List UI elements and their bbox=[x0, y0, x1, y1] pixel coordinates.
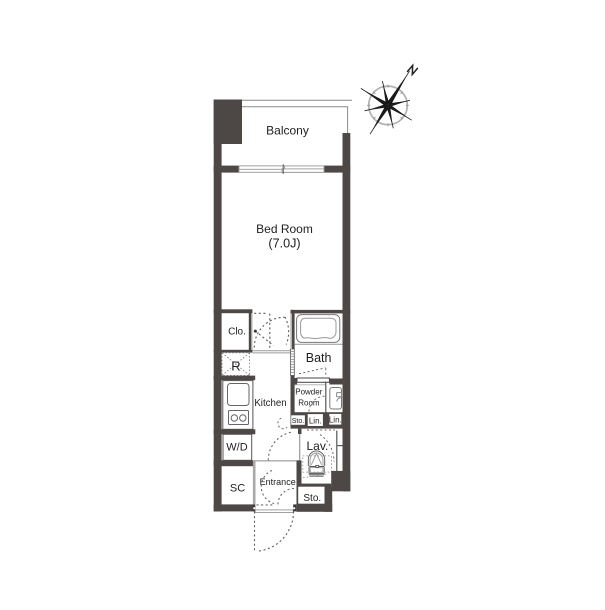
svg-text:SC: SC bbox=[230, 483, 245, 495]
svg-text:Entrance: Entrance bbox=[260, 477, 296, 487]
svg-text:(7.0J): (7.0J) bbox=[268, 237, 300, 251]
svg-text:Kitchen: Kitchen bbox=[254, 398, 286, 409]
svg-text:W/D: W/D bbox=[226, 442, 247, 454]
svg-text:Sto.: Sto. bbox=[292, 418, 305, 425]
svg-text:Bed Room: Bed Room bbox=[256, 222, 313, 236]
svg-text:Room: Room bbox=[298, 399, 320, 408]
svg-text:R: R bbox=[231, 358, 240, 373]
svg-text:Powder: Powder bbox=[295, 387, 322, 396]
svg-text:Lin.: Lin. bbox=[329, 416, 342, 425]
svg-text:Clo.: Clo. bbox=[228, 326, 246, 337]
svg-text:Balcony: Balcony bbox=[266, 124, 309, 138]
svg-text:Lin.: Lin. bbox=[309, 416, 322, 425]
svg-text:Sto.: Sto. bbox=[303, 493, 321, 504]
svg-text:Bath: Bath bbox=[306, 351, 332, 365]
